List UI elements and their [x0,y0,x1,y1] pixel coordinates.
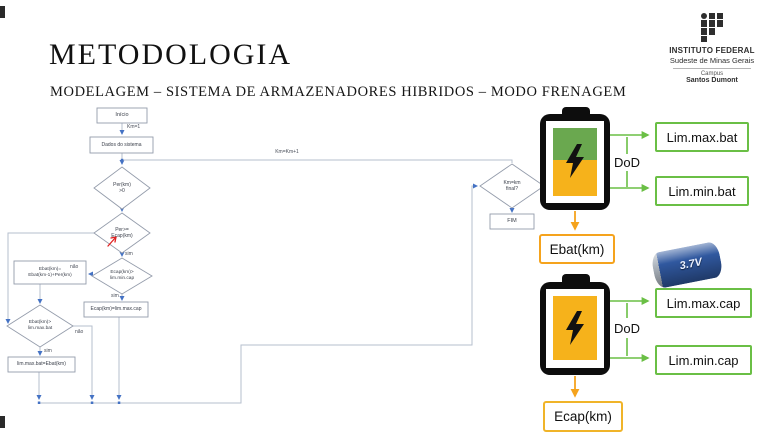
lim-min-cap-box: Lim.min.cap [655,345,752,375]
label-km-init: Km=1 [127,124,140,130]
node-ebat-limit-check: Ebat(km)> lim.max.bat [7,306,73,346]
node-per-ecap-check: Per>= Ecap(km) [94,214,150,252]
node-dados-do-sistema: Dados do sistema [90,137,153,153]
ebat-energy-box: Ebat(km) [539,234,615,264]
lightning-bolt-icon [563,144,587,178]
presentation-slide: METODOLOGIA MODELAGEM – SISTEMA DE ARMAZ… [0,0,768,432]
dod-battery-label: DoD [610,155,644,170]
lim-max-bat-box: Lim.max.bat [655,122,749,152]
label-nao-2: não [75,329,83,335]
cell-voltage-label: 3.7V [679,256,704,272]
label-sim-3: sim [44,348,52,354]
lightning-bolt-icon [563,311,587,345]
lim-max-cap-box: Lim.max.cap [655,288,752,318]
node-ecap-set: Ecap(km)=lim.max.cap [84,302,148,317]
node-per-check: Per(km) >0 [94,168,150,208]
flowchart-node-shapes [7,108,544,372]
node-ebat-update: Ebat(km)= Ebat(km-1)+Per(km) [14,261,86,284]
lim-min-bat-box: Lim.min.bat [655,176,749,206]
node-ecap-limit-check: Ecap(km)> lim.min.cap [92,259,152,293]
label-km-increment: Km=Km+1 [252,149,322,155]
node-inicio: Início [97,108,147,123]
label-sim-1: sim [125,251,133,257]
dod-capacitor-label: DoD [610,321,644,336]
node-km-final-check: Km=km final? [482,165,542,207]
label-sim-2: sim [111,293,119,299]
node-limmax-set: lim.max.bat=Ebat(km) [8,357,75,372]
ecap-energy-box: Ecap(km) [543,401,623,432]
node-fim: FIM [490,214,534,229]
